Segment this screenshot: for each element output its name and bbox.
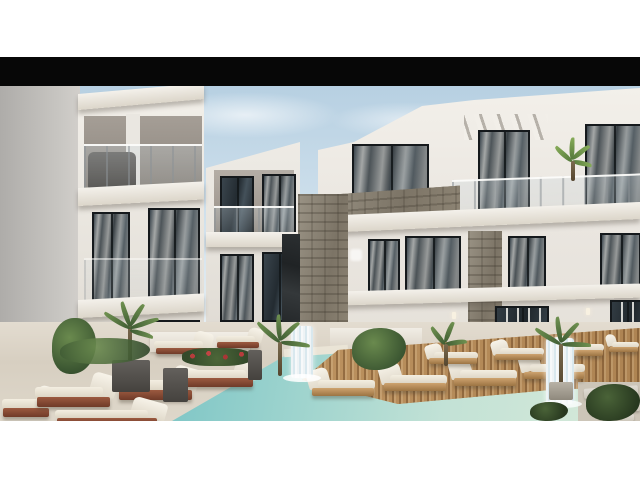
plant-pot: [163, 368, 188, 402]
top-margin: [0, 0, 640, 57]
window: [368, 239, 400, 297]
bottom-margin: [0, 421, 640, 480]
sun-lounger: [306, 367, 378, 397]
palm-plant: [535, 318, 593, 404]
letterbox-bar: [0, 57, 640, 86]
screenshot-root: [0, 0, 640, 480]
palm-plant: [425, 324, 469, 368]
glass-railing: [214, 206, 294, 234]
plant-pot: [549, 382, 573, 400]
sun-lounger: [606, 333, 640, 353]
flower-planter: [182, 348, 252, 366]
wall-lamp: [452, 312, 456, 319]
sun-lounger: [50, 398, 168, 421]
sun-glare: [350, 249, 362, 261]
balcony-plant: [552, 139, 594, 183]
plant-pot: [112, 360, 150, 392]
wall-lamp: [586, 308, 590, 315]
property-photo: [0, 86, 640, 421]
plant-pot: [248, 350, 262, 380]
window: [220, 254, 254, 322]
